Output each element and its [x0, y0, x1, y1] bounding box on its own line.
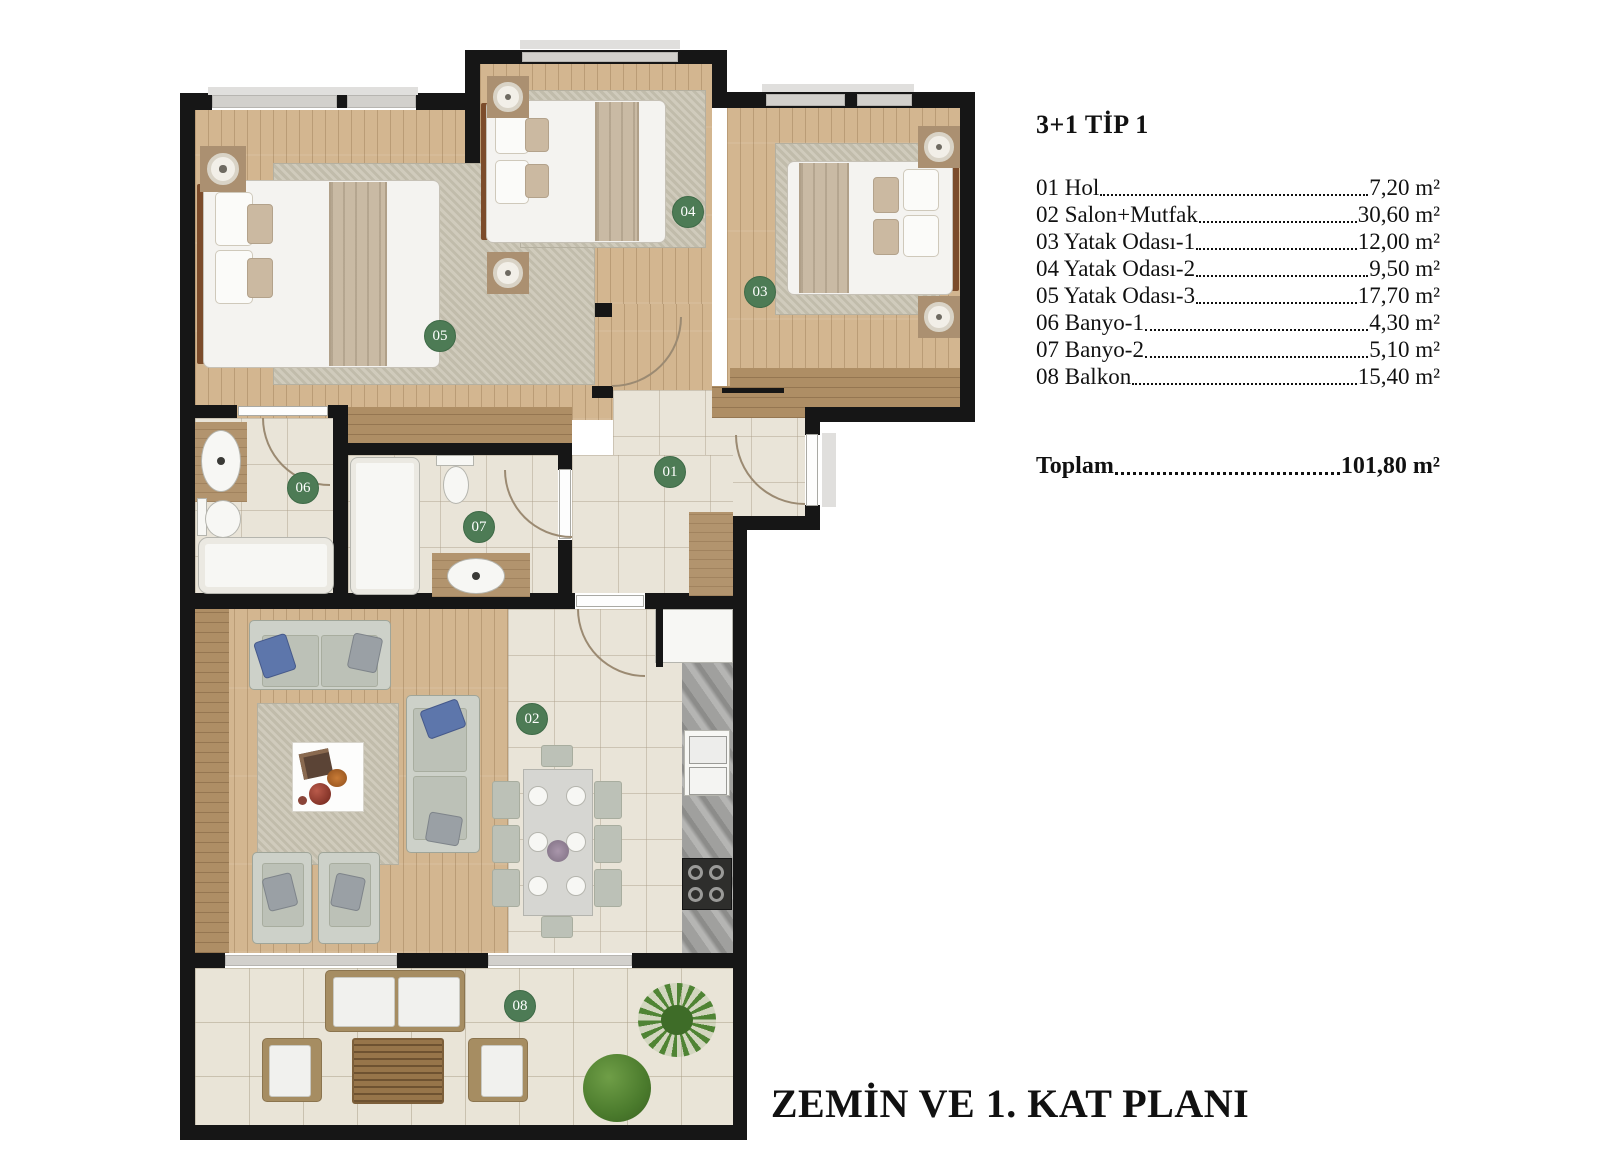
bedroom3-window-sill: [208, 87, 418, 95]
dotted-leader: [1115, 472, 1340, 475]
wall-balcony-bottom: [180, 1125, 747, 1140]
legend-item-value: 30,60 m²: [1358, 202, 1440, 228]
ceiling-lamp-icon: [918, 296, 960, 338]
dotted-leader: [1132, 383, 1357, 385]
dining-chair: [492, 869, 520, 907]
bed-pillow: [903, 215, 939, 257]
wall-kitchen-stub: [656, 609, 663, 667]
living-sofa-top: [249, 620, 391, 690]
kitchen-sink-unit: [684, 730, 730, 796]
ceiling-lamp-icon: [918, 126, 960, 168]
bedroom3-bed: [197, 180, 440, 368]
kitchen-cabinet: [655, 609, 733, 663]
balcony-door-right: [488, 955, 632, 966]
lamp-dot: [505, 270, 511, 276]
balcony-chair-cushion: [481, 1045, 523, 1097]
balcony-door-left: [225, 955, 397, 966]
wall-bathroom2-hall-upper: [558, 443, 572, 470]
wall-hall-stub: [592, 386, 613, 398]
living-armchair-left: [252, 852, 312, 944]
bathroom1-bathtub: [198, 537, 334, 594]
hall-cabinet: [689, 512, 733, 596]
legend-item-value: 15,40 m²: [1358, 364, 1440, 390]
wall-bathroom1-top-left: [180, 405, 237, 418]
balcony-chair-cushion: [269, 1045, 311, 1097]
wall-top-bedroom3-right: [416, 93, 465, 110]
wall-left-outer: [180, 95, 195, 1140]
dotted-leader: [1145, 356, 1368, 358]
bed-pillow: [903, 169, 939, 211]
legend-item-value: 9,50 m²: [1369, 256, 1440, 282]
entry-door: [806, 434, 818, 506]
ceiling-lamp-icon: [487, 76, 529, 118]
lamp-dot: [936, 144, 942, 150]
legend-item-value: 5,10 m²: [1369, 337, 1440, 363]
room-marker-07: 07: [463, 511, 495, 543]
marker-label: 04: [681, 204, 696, 221]
legend-item-label: 04 Yatak Odası-2: [1036, 256, 1195, 282]
dotted-leader: [1196, 302, 1357, 304]
legend-row: 03 Yatak Odası-112,00 m²: [1036, 228, 1440, 255]
room-marker-06: 06: [287, 472, 319, 504]
bedroom1-window-right: [857, 94, 912, 106]
lamp-ring: [493, 258, 522, 287]
balcony-sofa-cushion: [398, 977, 460, 1027]
lamp-ring: [207, 153, 239, 185]
bedroom1-window-sill: [762, 84, 914, 92]
wall-right-bedroom1: [960, 92, 975, 422]
dining-chair: [594, 869, 622, 907]
legend-row: 05 Yatak Odası-317,70 m²: [1036, 282, 1440, 309]
kitchen-stove: [682, 858, 732, 910]
wall-balcony-top-3: [632, 953, 733, 968]
bush-plant-icon: [583, 1054, 651, 1122]
marker-label: 03: [753, 284, 768, 301]
table-cup: [298, 796, 307, 805]
legend-item-label: 03 Yatak Odası-1: [1036, 229, 1195, 255]
bedroom1-threshold: [722, 388, 784, 393]
legend-total-value: 101,80 m²: [1341, 453, 1440, 480]
sink-drain-dot: [472, 572, 480, 580]
bed-pillow-accent: [873, 177, 899, 213]
dotted-leader: [1196, 248, 1357, 250]
dining-plate: [566, 786, 586, 806]
plan-title: ZEMİN VE 1. KAT PLANI: [760, 1080, 1260, 1127]
legend-item-label: 02 Salon+Mutfak: [1036, 202, 1198, 228]
dining-chair: [541, 916, 573, 938]
stove-burner: [688, 887, 703, 902]
lamp-dot: [219, 165, 226, 172]
sink-basin: [689, 736, 727, 764]
bed-pillow: [495, 160, 529, 204]
lamp-ring: [924, 302, 953, 331]
living-armchair-right: [318, 852, 380, 944]
legend-row: 04 Yatak Odası-29,50 m²: [1036, 255, 1440, 282]
table-flowers: [327, 769, 347, 787]
bed-pillow-accent: [247, 258, 273, 298]
bedroom1-window-mullion: [845, 92, 857, 108]
legend-total-label: Toplam: [1036, 453, 1114, 480]
sofa-pillow-gray: [425, 811, 464, 846]
bed-pillow-accent: [247, 204, 273, 244]
stove-burner: [709, 865, 724, 880]
bathroom2-toilet-bowl: [443, 466, 469, 504]
dining-plate: [528, 876, 548, 896]
wall-bathroom1-bathroom2: [333, 405, 348, 598]
bathroom2-toilet-tank: [436, 455, 474, 466]
bed-throw-blanket: [329, 182, 387, 366]
dotted-leader: [1196, 275, 1368, 277]
legend-row: 02 Salon+Mutfak30,60 m²: [1036, 201, 1440, 228]
palm-plant-icon: [638, 983, 716, 1057]
wall-bottom-bedroom1: [820, 407, 975, 422]
bathroom1-toilet-bowl: [205, 500, 241, 538]
entry-door-sill: [822, 433, 836, 507]
bedroom3-window-mullion: [337, 95, 347, 108]
bed-throw-blanket: [595, 102, 639, 241]
legend-row: 06 Banyo-14,30 m²: [1036, 309, 1440, 336]
room-marker-01: 01: [654, 456, 686, 488]
dotted-leader: [1199, 221, 1357, 223]
lamp-ring: [493, 82, 522, 111]
legend-item-value: 4,30 m²: [1369, 310, 1440, 336]
living-door: [576, 595, 644, 607]
dining-chair: [492, 825, 520, 863]
stove-burner: [709, 887, 724, 902]
living-room-sideboard: [195, 609, 229, 953]
room-marker-02: 02: [516, 703, 548, 735]
balcony-table: [352, 1038, 444, 1104]
legend-item-value: 12,00 m²: [1358, 229, 1440, 255]
coffee-table: [292, 742, 364, 812]
room-marker-04: 04: [672, 196, 704, 228]
ceiling-lamp-icon: [487, 252, 529, 294]
bedroom1-window-left: [766, 94, 845, 106]
balcony-sofa-cushion: [333, 977, 395, 1027]
lamp-dot: [505, 94, 511, 100]
area-legend: 3+1 TİP 1 01 Hol7,20 m² 02 Salon+Mutfak3…: [1036, 110, 1440, 480]
bed-pillow-accent: [873, 219, 899, 255]
dining-plate: [566, 876, 586, 896]
legend-row: 08 Balkon15,40 m²: [1036, 363, 1440, 390]
legend-item-label: 05 Yatak Odası-3: [1036, 283, 1195, 309]
bedroom3-window-left: [212, 95, 337, 108]
legend-total-row: Toplam101,80 m²: [1036, 450, 1440, 480]
dining-centerpiece: [547, 840, 569, 862]
lamp-ring: [924, 132, 953, 161]
dining-plate: [528, 786, 548, 806]
balcony-armchair-left: [262, 1038, 322, 1102]
bed-pillow-accent: [525, 164, 549, 198]
bed-pillow-accent: [525, 118, 549, 152]
dining-chair: [594, 825, 622, 863]
wall-bathroom2-hall-lower: [558, 540, 572, 598]
legend-item-label: 08 Balkon: [1036, 364, 1131, 390]
bathroom1-door: [238, 406, 328, 416]
bedroom2-window-sill: [520, 40, 680, 49]
dotted-leader: [1145, 329, 1368, 331]
dining-plate: [528, 832, 548, 852]
ceiling-lamp-icon: [200, 146, 246, 192]
legend-row: 07 Banyo-25,10 m²: [1036, 336, 1440, 363]
wall-balcony-top-1: [180, 953, 225, 968]
plant-core: [661, 1005, 692, 1035]
legend-item-label: 07 Banyo-2: [1036, 337, 1144, 363]
bedroom2-window: [522, 52, 678, 62]
marker-label: 02: [525, 711, 540, 728]
bathroom2-shower: [350, 457, 420, 595]
marker-label: 01: [663, 464, 678, 481]
room-marker-03: 03: [744, 276, 776, 308]
stove-burner: [688, 865, 703, 880]
wall-right-living: [733, 516, 747, 1140]
dining-plate: [566, 832, 586, 852]
dining-chair: [541, 745, 573, 767]
dining-chair: [492, 781, 520, 819]
balcony-armchair-right: [468, 1038, 528, 1102]
bedroom2-bed: [481, 100, 666, 243]
wall-bathroom2-top: [348, 443, 558, 455]
dining-chair: [594, 781, 622, 819]
sink-basin: [689, 767, 727, 795]
room-marker-05: 05: [424, 320, 456, 352]
legend-item-value: 17,70 m²: [1358, 283, 1440, 309]
bedroom3-window-right: [347, 95, 416, 108]
marker-label: 05: [433, 328, 448, 345]
lamp-dot: [936, 314, 942, 320]
sink-drain-dot: [217, 457, 225, 465]
dotted-leader: [1100, 194, 1368, 196]
table-teapot: [309, 783, 331, 805]
floor-plan-page: 01 02 03 04 05 06 07 08 3+1 TİP 1 01 Hol…: [0, 0, 1600, 1173]
legend-title: 3+1 TİP 1: [1036, 110, 1440, 140]
bedroom1-bed: [787, 161, 959, 295]
marker-label: 06: [296, 480, 311, 497]
legend-item-label: 01 Hol: [1036, 175, 1099, 201]
legend-items: 01 Hol7,20 m² 02 Salon+Mutfak30,60 m² 03…: [1036, 174, 1440, 390]
marker-label: 08: [513, 998, 528, 1015]
living-sofa-right: [406, 695, 480, 853]
wall-balcony-top-2: [397, 953, 488, 968]
marker-label: 07: [472, 519, 487, 536]
room-marker-08: 08: [504, 990, 536, 1022]
legend-item-label: 06 Banyo-1: [1036, 310, 1144, 336]
balcony-sofa: [325, 970, 465, 1032]
wall-entry-upper: [805, 407, 820, 435]
legend-item-value: 7,20 m²: [1369, 175, 1440, 201]
bed-throw-blanket: [799, 163, 849, 293]
legend-row: 01 Hol7,20 m²: [1036, 174, 1440, 201]
